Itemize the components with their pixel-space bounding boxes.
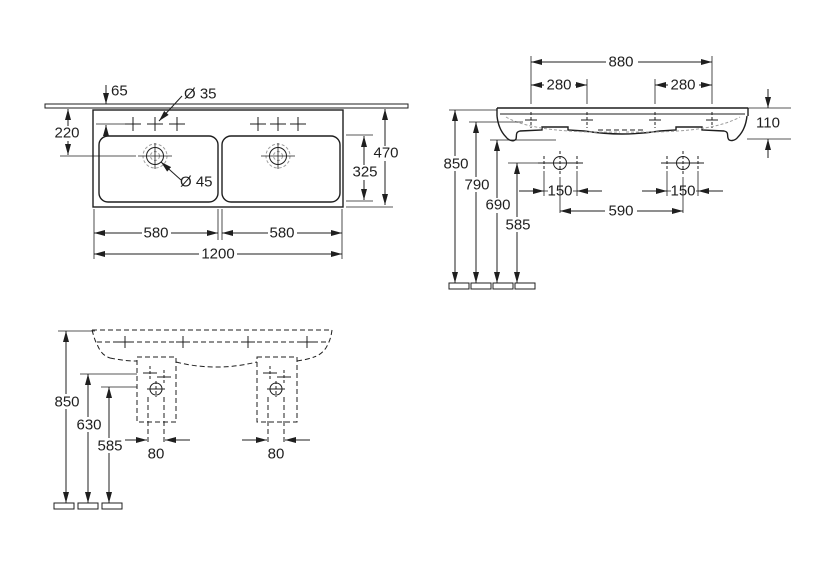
floor-line-front	[54, 503, 122, 509]
dim-bolt-spacing: 150 150	[519, 171, 723, 200]
basin-outline-side	[497, 108, 748, 141]
dim-label-left-bowl-width: 580	[143, 225, 168, 242]
dim-label-tap-diameter: Ø 35	[184, 86, 217, 103]
dim-label-drain-setback: 220	[54, 125, 79, 142]
dim-label-drain-diameter: Ø 45	[180, 174, 213, 191]
dim-overall-depth: 470	[346, 109, 401, 207]
dim-pipe-clearance-right: 80	[242, 440, 310, 463]
dim-label-body-bottom-height: 690	[485, 197, 510, 214]
dim-label-bolt-hole-height: 585	[505, 217, 530, 234]
dim-label-right-bowl-width: 580	[269, 225, 294, 242]
plan-view: 65 Ø 35 220 Ø 45 470 325	[45, 83, 408, 263]
side-view: 880 280 280 110 850 790	[441, 54, 791, 290]
dim-fixing-span: 880 280 280	[531, 54, 712, 105]
technical-drawing-page: 65 Ø 35 220 Ø 45 470 325	[0, 0, 826, 561]
dim-label-bolt-centre-span: 590	[608, 203, 633, 220]
height-dims-front: 850 630 585	[52, 331, 137, 509]
front-view: 80 80 850 630 585	[52, 330, 332, 509]
dim-label-trap-height: 585	[97, 438, 122, 455]
wall-line	[45, 104, 408, 108]
dim-label-underside-height: 790	[464, 177, 489, 194]
dim-label-rim-height-front: 850	[54, 394, 79, 411]
dim-label-fixing-offset-left: 280	[546, 77, 571, 94]
dim-bolt-centre-span: 590	[560, 177, 683, 220]
dim-label-fixing-offset-right: 280	[670, 77, 695, 94]
dim-widths: 580 580 1200	[94, 209, 342, 263]
hidden-bowl-right	[626, 117, 740, 132]
dim-label-overall-depth: 470	[373, 145, 398, 162]
trap-right	[257, 357, 297, 444]
bolt-holes-side	[538, 151, 704, 175]
dimension-drawing-svg: 65 Ø 35 220 Ø 45 470 325	[0, 0, 826, 561]
height-dims-side: 850 790 690 585	[441, 110, 556, 289]
basin-outline-front	[92, 330, 332, 367]
dim-label-rim-height-side: 850	[443, 156, 468, 173]
dim-label-fixing-span: 880	[608, 54, 633, 71]
dim-label-pipe-clearance-left: 80	[148, 446, 165, 463]
dim-label-rim-thickness: 110	[756, 115, 780, 132]
floor-line-side	[449, 283, 535, 289]
dim-rim-thickness: 110	[747, 89, 791, 158]
dim-label-overall-width: 1200	[201, 246, 234, 263]
dim-label-outlet-height: 630	[76, 417, 101, 434]
dim-label-bowl-depth: 325	[352, 164, 377, 181]
dim-pipe-clearance-left: 80	[122, 440, 190, 463]
dim-label-tap-setback: 65	[111, 83, 128, 100]
dim-label-pipe-clearance-right: 80	[268, 446, 285, 463]
trap-left	[137, 357, 176, 444]
